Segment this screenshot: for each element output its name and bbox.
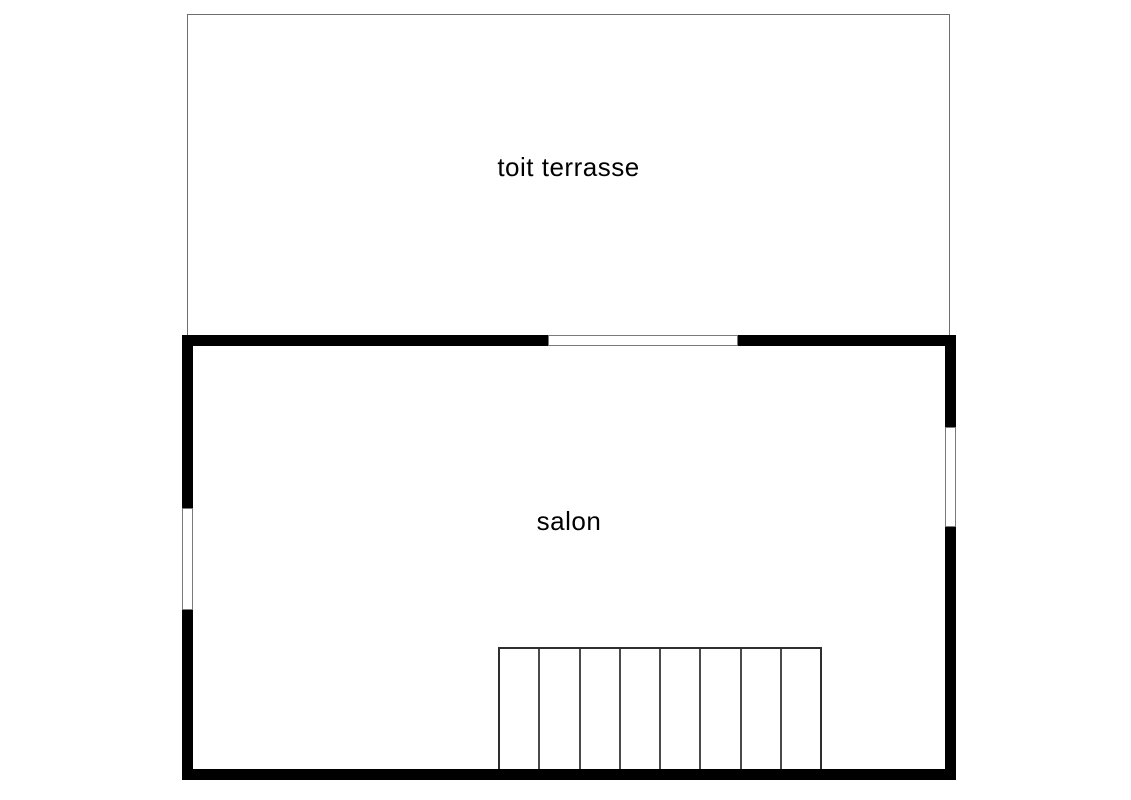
room-label-salon: salon — [193, 506, 945, 536]
window-left-wall — [182, 508, 193, 610]
stair-tread — [579, 649, 619, 769]
window-right-wall — [945, 427, 956, 527]
stair-tread — [538, 649, 578, 769]
floor-plan-canvas: toit terrasse salon — [0, 0, 1131, 800]
stair-tread — [740, 649, 780, 769]
room-label-toit-terrasse: toit terrasse — [187, 152, 950, 182]
window-top-wall — [548, 335, 738, 346]
stair-tread — [659, 649, 699, 769]
stair-tread — [780, 649, 820, 769]
staircase — [498, 647, 822, 769]
stair-tread — [619, 649, 659, 769]
stair-tread — [699, 649, 739, 769]
stair-tread — [500, 649, 538, 769]
